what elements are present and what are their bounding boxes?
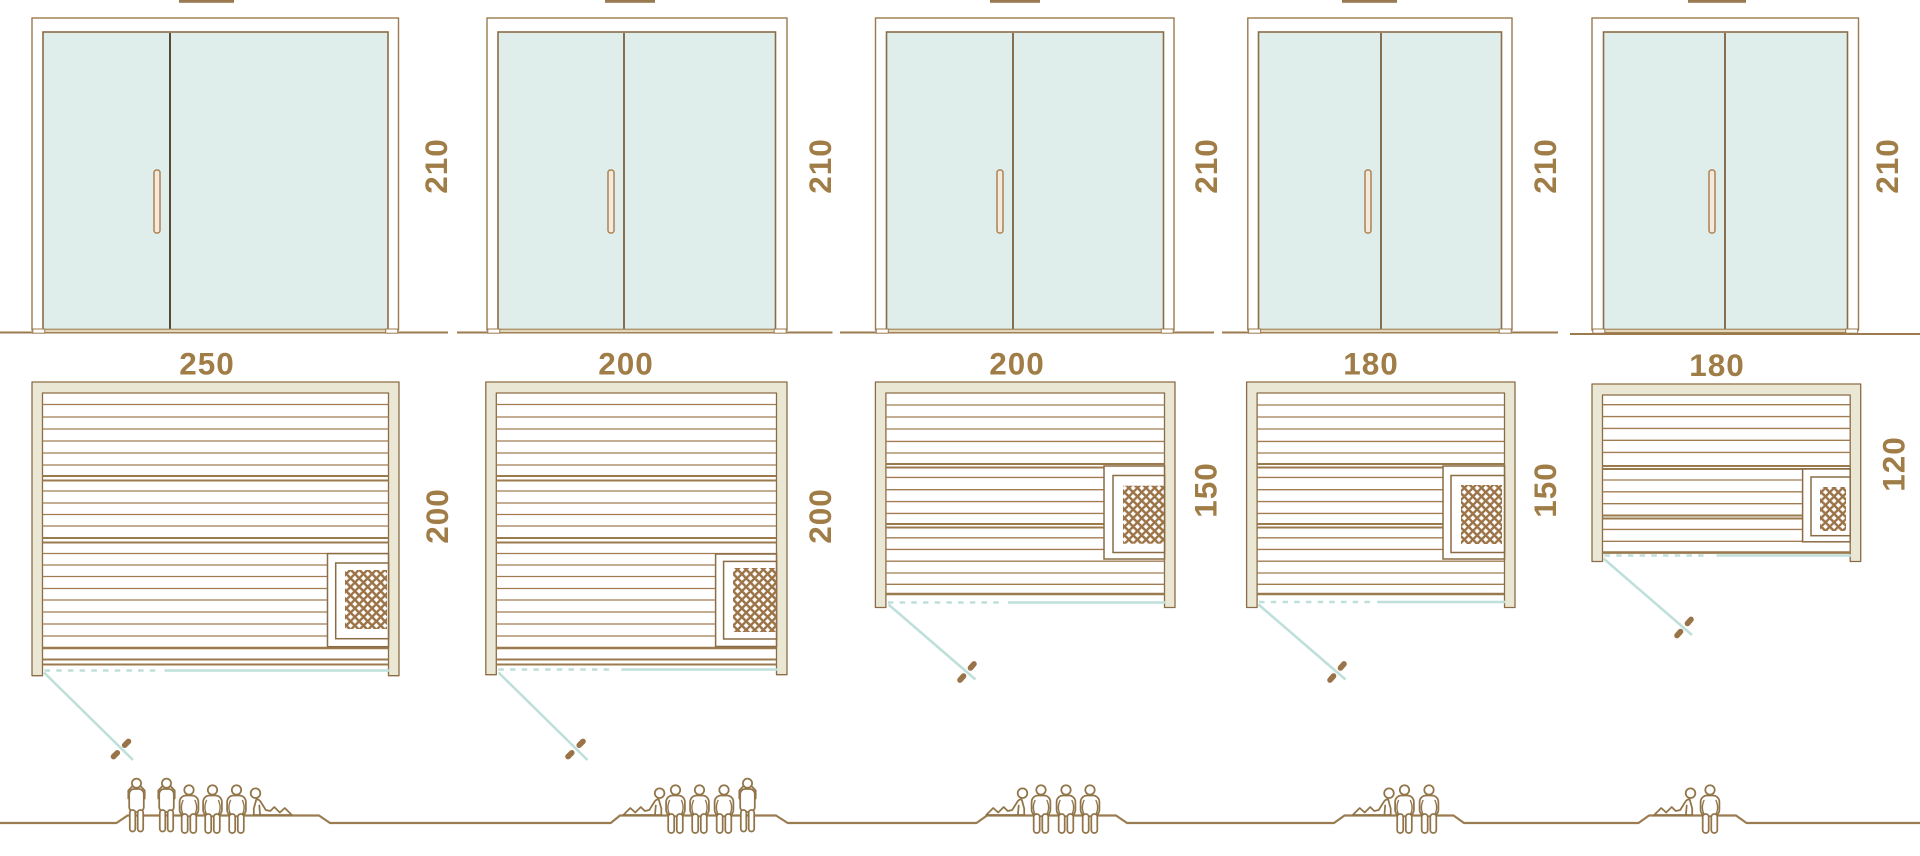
svg-text:200: 200 [598, 346, 654, 382]
svg-text:210: 210 [1188, 138, 1224, 194]
svg-text:180: 180 [1689, 347, 1745, 383]
svg-text:210: 210 [802, 138, 838, 194]
svg-text:250: 250 [179, 346, 235, 382]
svg-text:180: 180 [1343, 346, 1399, 382]
svg-text:210: 210 [1527, 138, 1563, 194]
svg-text:150: 150 [1527, 462, 1563, 518]
svg-text:150: 150 [1188, 462, 1224, 518]
svg-text:200: 200 [419, 488, 455, 544]
svg-text:200: 200 [989, 346, 1045, 382]
svg-text:200: 200 [802, 488, 838, 544]
svg-text:120: 120 [1876, 436, 1912, 492]
svg-text:210: 210 [1869, 138, 1905, 194]
svg-text:210: 210 [418, 138, 454, 194]
